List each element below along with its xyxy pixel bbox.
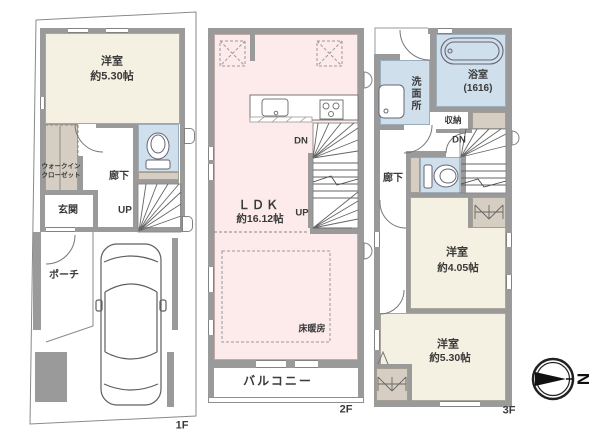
wall [406, 151, 410, 193]
toilet-room-1f [138, 124, 179, 172]
vent-icon [364, 72, 372, 259]
washroom [380, 60, 430, 125]
window [374, 330, 380, 350]
balcony-rail [208, 397, 364, 403]
wall [45, 190, 98, 195]
wic-label: クローゼット [42, 173, 81, 180]
window [374, 232, 380, 247]
room-b-size-label: 約5.30帖 [429, 353, 470, 364]
vent-icon [512, 131, 519, 145]
floorplan-canvas: 洋室 約5.30帖 ウォークイン クローゼット 玄関 廊下 UP ポーチ 1F … [0, 0, 600, 448]
stairs-down-label: DN [294, 136, 308, 146]
balcony-label: バルコニー [243, 375, 313, 387]
window [40, 97, 45, 109]
wall [380, 125, 404, 130]
wall [406, 309, 506, 313]
entrance-door-opening [46, 227, 75, 232]
window [506, 233, 512, 247]
wic-label: ウォークイン [42, 164, 81, 171]
door-marker [184, 128, 195, 144]
room-size-label: 約5.30帖 [90, 72, 133, 83]
wall [436, 129, 472, 133]
car-icon [96, 244, 166, 405]
sliding-window [295, 360, 318, 368]
floor-label-2f: 2F [340, 405, 353, 416]
wall [308, 153, 313, 228]
wall [410, 151, 446, 157]
storage-label: 収納 [444, 116, 461, 125]
bathroom-size-label: (1616) [464, 84, 493, 94]
wall [376, 364, 412, 368]
toilet-counter-3f [410, 157, 420, 193]
wall [310, 228, 358, 234]
toilet-room-3f [420, 157, 464, 193]
closet-stairside-front [472, 197, 506, 228]
entrance-label: 玄関 [58, 206, 78, 216]
hallway-label: 廊下 [383, 174, 403, 184]
fence-wall [167, 352, 174, 407]
window [106, 28, 128, 33]
hallway-label: 廊下 [109, 172, 129, 182]
room-a-size-label: 約4.05帖 [437, 263, 478, 274]
window [438, 28, 452, 34]
compass-north-label: N [574, 373, 593, 385]
wall [461, 155, 466, 193]
window [208, 267, 214, 292]
bathroom-label: 浴室 [468, 71, 488, 81]
porch-wall [35, 352, 67, 402]
window [208, 320, 214, 335]
wall [506, 28, 512, 407]
stairs-down-label: DN [452, 135, 466, 145]
entrance-door-arc [46, 235, 75, 264]
window [440, 401, 480, 407]
room-b-label: 洋室 [437, 340, 459, 351]
fence-wall [172, 238, 178, 330]
walk-in-closet [45, 124, 78, 193]
window [208, 164, 214, 180]
stairs-up-label: UP [118, 206, 132, 216]
sliding-window [256, 360, 286, 368]
floor-label-1f: 1F [176, 421, 189, 432]
ldk-size-label: 約16.12帖 [236, 214, 283, 225]
wall [133, 124, 138, 232]
floor-heating-label: 床暖房 [298, 325, 325, 334]
wall [96, 124, 135, 128]
wall [250, 34, 255, 61]
wall [374, 54, 400, 60]
porch-boundary [46, 232, 93, 342]
room-a-label: 洋室 [446, 248, 468, 259]
stairs-up-label: UP [295, 208, 308, 218]
wall [468, 112, 472, 129]
porch-wall [33, 232, 41, 330]
wall [214, 360, 358, 368]
compass-icon: N [533, 359, 593, 399]
wall [406, 197, 410, 309]
closet-lower [376, 368, 408, 401]
wall [408, 364, 412, 401]
door-marker [182, 216, 193, 232]
washroom-label: 洗面所 [409, 76, 419, 112]
room-label: 洋室 [101, 57, 123, 68]
wall [406, 193, 506, 197]
window [506, 275, 512, 289]
window [208, 147, 214, 160]
wall [430, 34, 436, 112]
wall [468, 197, 472, 228]
porch-label: ポーチ [49, 271, 79, 281]
floor-label-3f: 3F [503, 406, 516, 417]
window [68, 28, 88, 33]
ldk-label: ＬＤＫ [238, 199, 280, 211]
wall [138, 180, 179, 184]
toilet-counter-1f [138, 172, 179, 180]
stairwell-2f [313, 123, 358, 228]
wall [93, 195, 98, 227]
closet-upper [472, 112, 506, 129]
